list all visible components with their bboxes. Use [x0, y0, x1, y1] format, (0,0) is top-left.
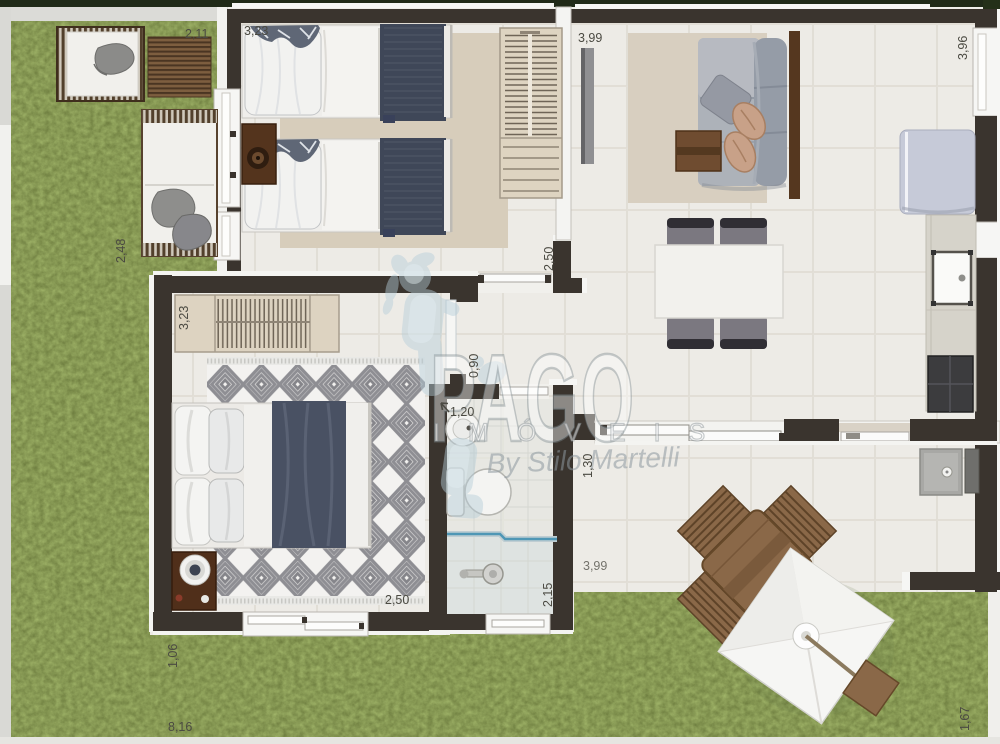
svg-text:2,15: 2,15 [541, 583, 555, 607]
svg-text:1,30: 1,30 [581, 454, 595, 478]
svg-text:2,11: 2,11 [185, 27, 208, 41]
svg-text:3,23: 3,23 [244, 24, 268, 38]
svg-text:1,67: 1,67 [958, 707, 972, 731]
svg-text:2,50: 2,50 [385, 593, 409, 607]
svg-text:2,48: 2,48 [114, 239, 128, 263]
svg-text:3,96: 3,96 [956, 36, 970, 60]
svg-text:IMÓVEIS: IMÓVEIS [433, 418, 733, 447]
svg-text:8,16: 8,16 [168, 720, 192, 734]
svg-text:2,50: 2,50 [542, 247, 556, 271]
svg-text:0,90: 0,90 [467, 354, 481, 378]
svg-text:3,23: 3,23 [177, 306, 191, 330]
svg-text:1,06: 1,06 [166, 644, 180, 668]
svg-text:3,99: 3,99 [583, 559, 607, 573]
svg-text:1,20: 1,20 [450, 405, 474, 419]
svg-text:3,99: 3,99 [578, 31, 602, 45]
